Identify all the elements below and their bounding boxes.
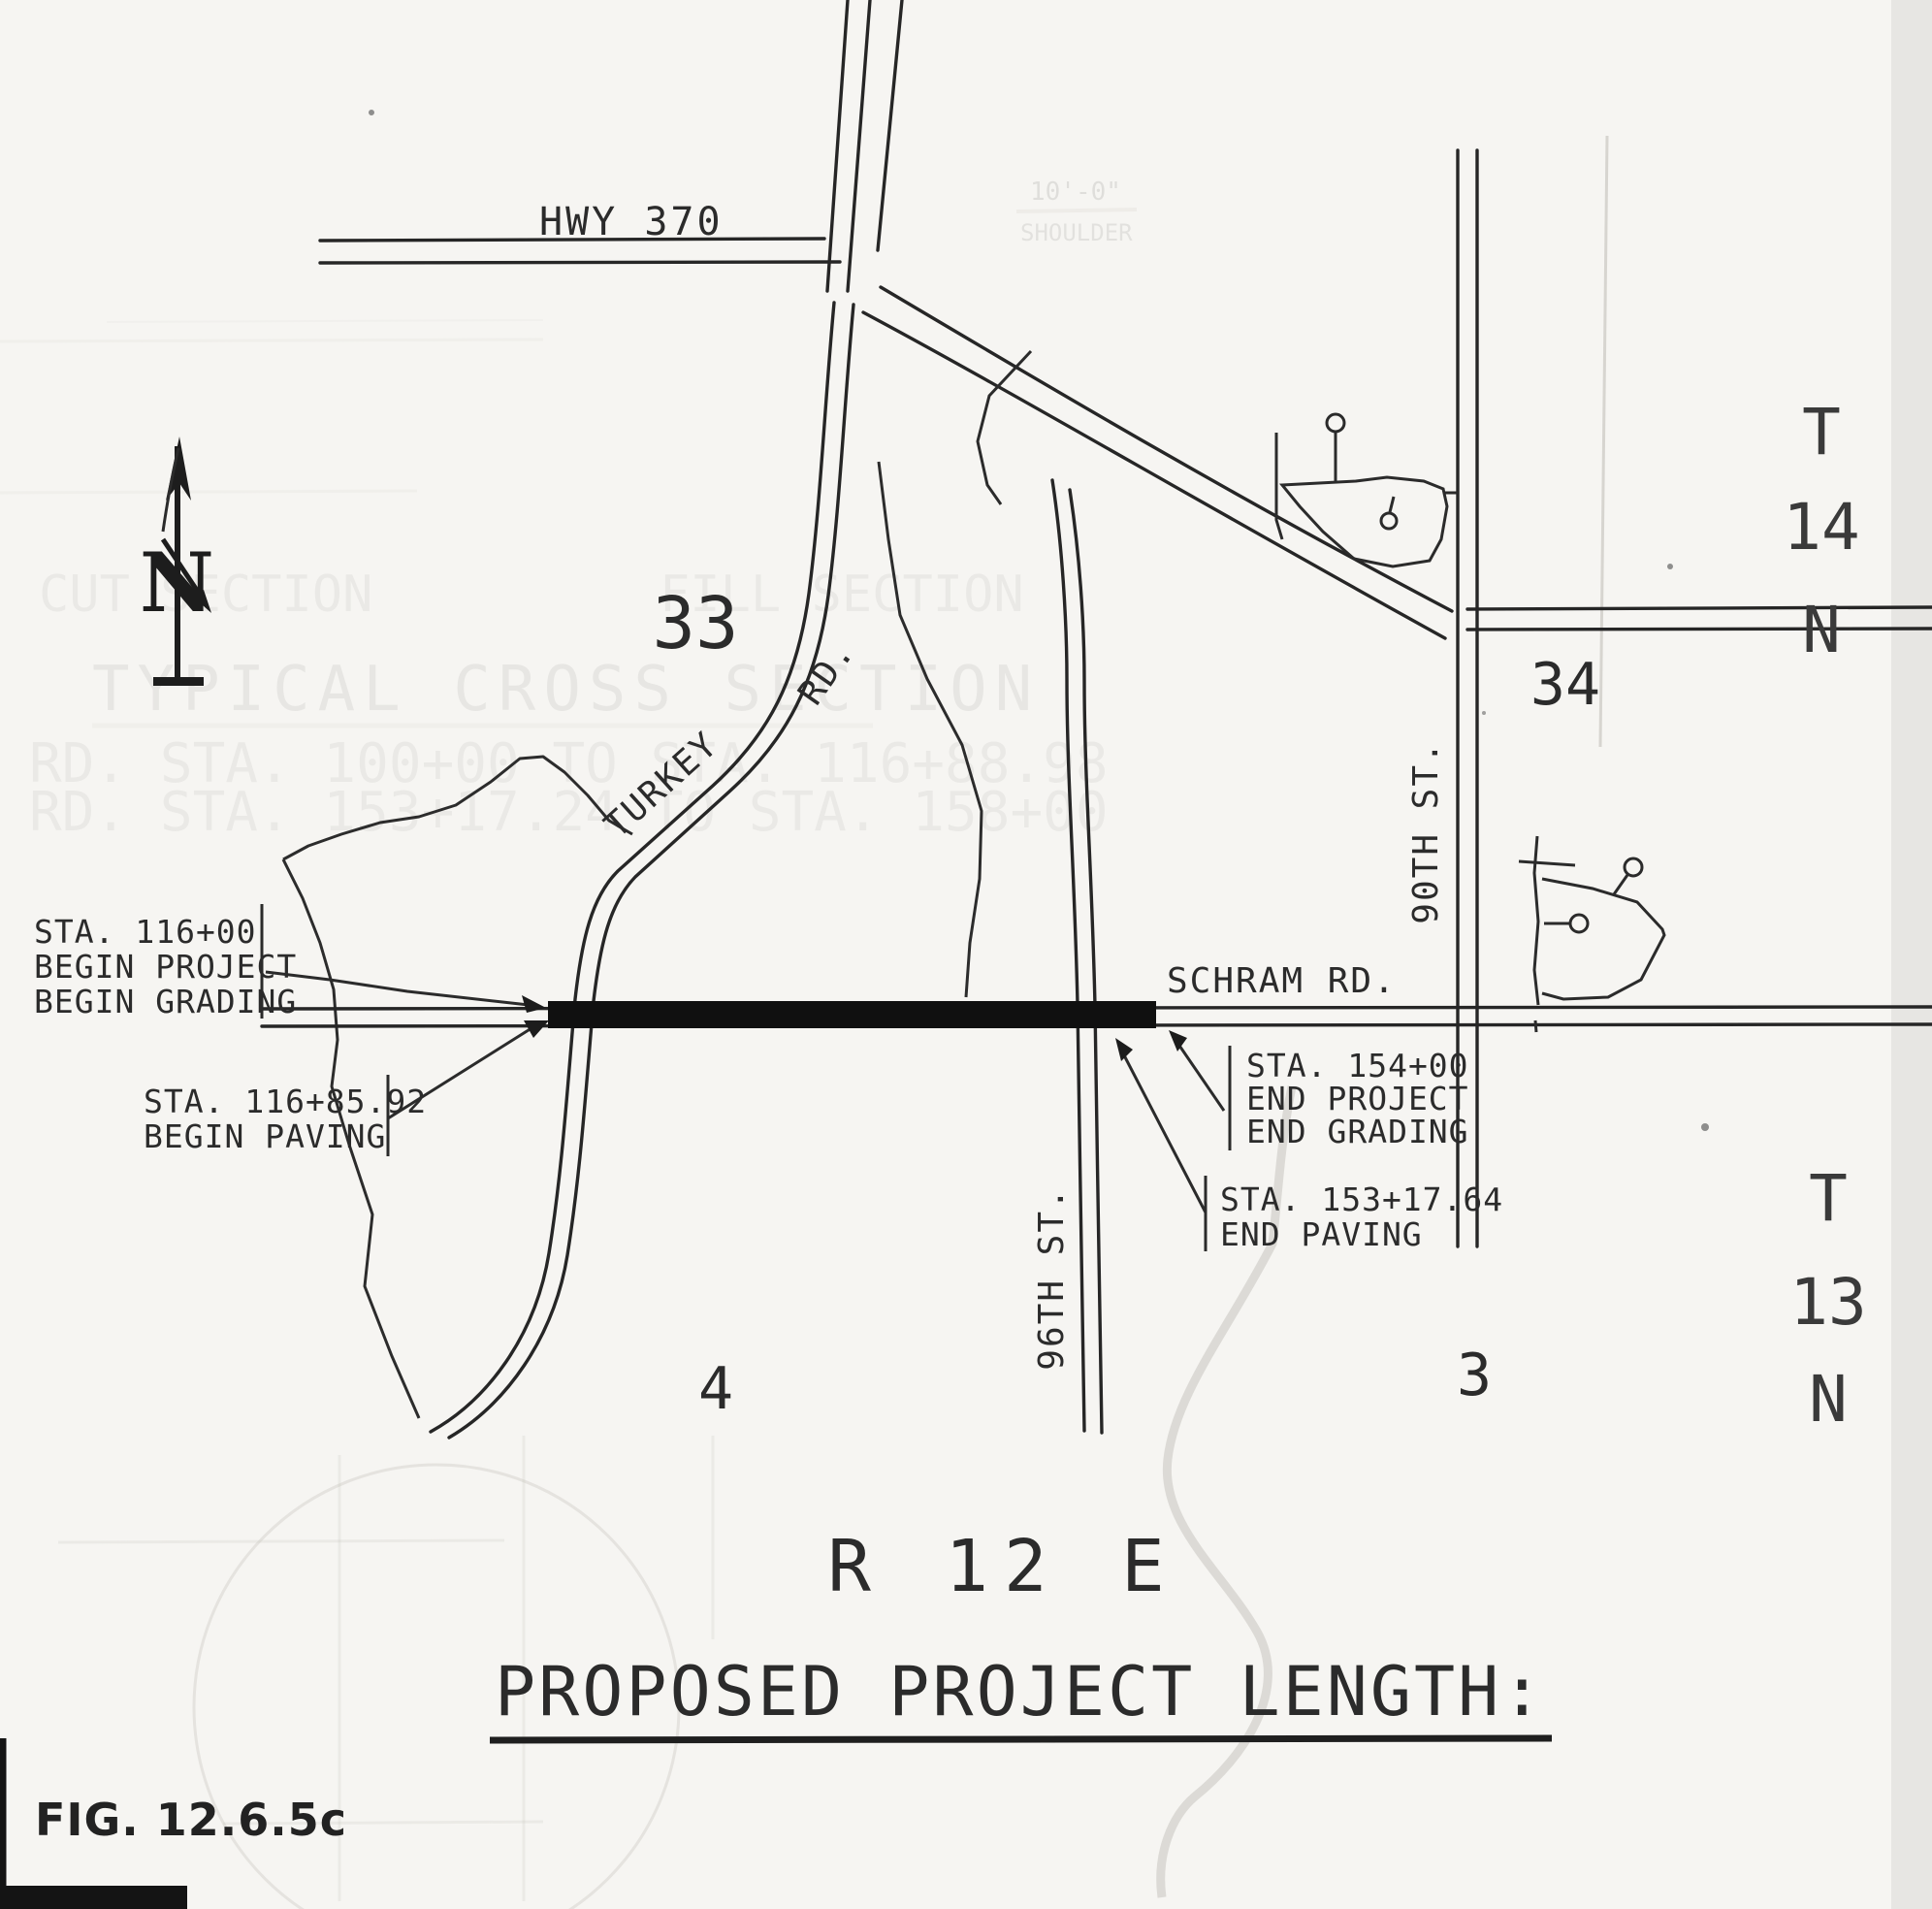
begin-paving-line2: BEGIN PAVING — [144, 1117, 386, 1155]
speck — [1667, 564, 1673, 569]
east-road-south-edge — [1467, 629, 1932, 630]
figure-number: FIG. 12.6.5c — [35, 1794, 347, 1846]
begin-project-line3: BEGIN GRADING — [34, 983, 297, 1020]
well-stem-1 — [1390, 497, 1394, 512]
end-paving-line1: STA. 153+17.64 — [1220, 1181, 1503, 1218]
north-arrow-base — [153, 677, 204, 686]
end-project-line3: END GRADING — [1246, 1113, 1469, 1150]
caption-underline — [490, 1738, 1552, 1740]
junction-ramp-hook — [978, 351, 1031, 504]
scanned-project-location-map: CUT SECTION FILL SECTION TYPICAL CROSS S… — [0, 0, 1932, 1909]
north-road-west-edge — [827, 0, 848, 291]
well-icon — [1381, 513, 1397, 529]
north-road-branch-edge — [878, 0, 902, 250]
north-road-east-edge — [848, 0, 870, 291]
windmill-icon — [1327, 414, 1344, 432]
end-project-leader — [1175, 1040, 1224, 1111]
farmstead-e-outline — [1542, 879, 1664, 999]
t13-number: 13 — [1789, 1265, 1866, 1340]
caption-block: PROPOSED PROJECT LENGTH: FIG. 12.6.5c — [0, 1652, 1552, 1909]
turkey-rd-west-edge — [431, 303, 834, 1432]
t14-number: 14 — [1783, 490, 1859, 565]
t13-letter-n: N — [1809, 1362, 1848, 1437]
section-34: 34 — [1530, 651, 1600, 719]
east-road-north-edge — [1467, 607, 1932, 609]
bleed-text-typical-cross-section: TYPICAL CROSS SECTION — [92, 654, 1040, 726]
schram-rd-label: SCHRAM RD. — [1167, 961, 1397, 1001]
windmill-icon-2 — [1625, 858, 1642, 876]
end-project-arrowhead — [1169, 1030, 1187, 1052]
windmill-stem-2 — [1614, 875, 1627, 894]
hwy-370-label: HWY 370 — [539, 200, 724, 244]
north-label: N — [140, 534, 214, 631]
farmstead-e-tick — [1519, 861, 1575, 865]
farmstead-nw-outline — [1282, 477, 1447, 566]
begin-project-line1: STA. 116+00 — [34, 913, 257, 951]
bleed-text-dimension: 10'-0" — [1030, 178, 1121, 207]
96th-st-east-edge — [1070, 490, 1102, 1433]
project-length-bar — [548, 1001, 1156, 1028]
proposed-project-length-caption: PROPOSED PROJECT LENGTH: — [495, 1652, 1545, 1731]
begin-project-line2: BEGIN PROJECT — [34, 948, 297, 986]
range-label: R 12 E — [827, 1525, 1179, 1608]
farmstead-e-lane-dash — [1535, 1020, 1536, 1032]
begin-project-leader — [266, 972, 529, 1005]
t14-letter-n: N — [1802, 593, 1841, 667]
turkey-rd-east-edge — [449, 305, 853, 1438]
creek-bank-east — [879, 462, 982, 997]
end-paving-arrowhead — [1115, 1038, 1133, 1061]
section-3: 3 — [1457, 1342, 1492, 1409]
section-4: 4 — [698, 1355, 733, 1423]
speck — [1701, 1123, 1709, 1131]
farmstead-northwest — [1276, 414, 1458, 566]
farmstead-east — [1519, 836, 1664, 1032]
north-arrow: N — [140, 437, 214, 686]
t13-letter-t: T — [1809, 1161, 1848, 1236]
scan-corner-block — [0, 1886, 187, 1909]
begin-paving-line1: STA. 116+85.92 — [144, 1083, 427, 1120]
96th-st-label: 96TH ST. — [1032, 1186, 1072, 1370]
speck — [1482, 711, 1486, 715]
90th-st-label: 90TH ST. — [1406, 740, 1446, 923]
bleed-text-shoulder: SHOULDER — [1020, 219, 1133, 246]
speck — [369, 110, 374, 115]
bleed-text-sta-row-2: RD. STA. 153+17.24 TO STA. 158+00 — [29, 781, 1109, 844]
project-limits — [262, 904, 1230, 1251]
well-icon-2 — [1570, 915, 1588, 932]
t14-letter-t: T — [1802, 395, 1841, 469]
hwy-370-west-south-edge — [320, 262, 840, 263]
end-paving-line2: END PAVING — [1220, 1215, 1423, 1253]
scan-edge-shade — [1891, 0, 1932, 1909]
map-canvas: CUT SECTION FILL SECTION TYPICAL CROSS S… — [0, 0, 1932, 1909]
section-33: 33 — [652, 582, 738, 665]
end-paving-leader — [1123, 1053, 1206, 1213]
